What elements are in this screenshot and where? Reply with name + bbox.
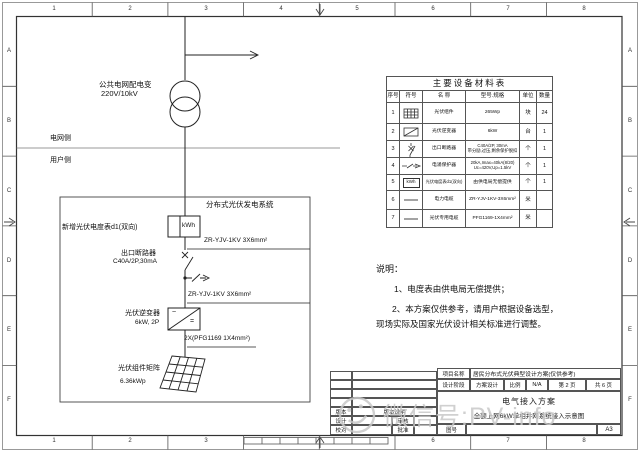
row-qty: 1 [537,141,553,158]
row-spec: 由供电局无偿提供 [466,175,520,191]
col-label: 7 [506,6,509,12]
revision-cell [352,398,437,407]
breaker-symbol [400,141,423,158]
pv-array-name: 光伏组件矩阵 [118,363,160,373]
row-name: 电力电缆 [423,191,466,210]
row-spec-line1: 20kA,Imax=40kA(8/20) [471,160,515,165]
approve-label: 批准 [392,425,414,435]
row-name: 光伏专用电缆 [423,210,466,228]
junction-dot [183,276,186,279]
paper-size: A3 [597,424,621,435]
inverter-symbol [400,124,423,141]
row-no: 4 [387,158,400,175]
review-label: 审核 [392,416,414,425]
row-unit: 个 [520,141,537,158]
drawing-title-cell: 电气接入方案 全额上网6kW单相并网系统接入示意图 [437,391,621,424]
cable-ac2-label: ZR-YJV-1KV 3X6mm² [188,291,251,298]
design-label: 设计 [330,416,352,425]
proof-value [352,425,392,435]
row-no: 2 [387,124,400,141]
row-qty: 1 [537,175,553,191]
table-row: 4 电涌保护器 20kA,Imax=40kA(8/20)Uc=420V,Up=1… [387,158,553,175]
col-label: 2 [128,438,131,444]
row-unit: 个 [520,158,537,175]
scale-label: 比例 [504,379,526,391]
revision-cell [352,380,437,389]
cable-symbol [400,210,423,228]
meter-label: 新增光伏电度表d1(双向) [62,222,137,232]
col-label: 4 [279,6,282,12]
scale-value: N/A [526,379,548,391]
revision-cell [330,380,352,389]
row-label: B [628,118,632,124]
col-label: 7 [506,438,509,444]
row-spec-line1: C40A/2P, 30mA [477,143,507,148]
cable-ac1-label: ZR-YJV-1KV 3X6mm² [204,237,267,244]
row-no: 5 [387,175,400,191]
grid-side-label: 电网侧 [50,133,71,143]
col-label: 1 [52,6,55,12]
col-label: 6 [431,6,434,12]
spd-icon [187,274,210,282]
revision-cell [330,398,352,407]
grid-arrow-icon [185,51,258,59]
col-label: 8 [582,438,585,444]
revision-cell [352,371,437,380]
proof-label: 校对 [330,425,352,435]
row-qty [537,210,553,228]
review-value [414,416,437,425]
row-label: A [628,48,632,54]
breaker-spec: C40A/2P,30mA [113,258,157,265]
drawing-no-label: 图号 [437,424,466,435]
approve-value [414,425,437,435]
note-1: 1、电度表由供电局无偿提供； [394,283,509,295]
inverter-dc-glyph: = [190,318,194,325]
row-spec: PFG1169-1X4mm² [466,210,520,228]
pv-panel-symbol [400,103,423,124]
row-qty: 1 [537,158,553,175]
page-current: 第 2 页 [548,379,586,391]
col-label: 2 [128,6,131,12]
note-2-cont: 现场实际及国家光伏设计相关标准进行调整。 [376,318,546,330]
drawing-title-line1: 电气接入方案 [502,396,556,407]
page-total: 共 6 页 [586,379,621,391]
version-label: 版本 [330,407,352,416]
row-spec-line2: Uc=420V,Up=1.5kV [474,165,512,170]
row-qty: 24 [537,103,553,124]
row-no: 1 [387,103,400,124]
table-row: 6 电力电缆 ZR-YJV-1KV-3X6mm² 米 [387,191,553,210]
inverter-spec: 6kW, 2P [135,319,159,326]
pv-system-title: 分布式光伏发电系统 [206,199,274,210]
stage-label: 设计阶段 [437,379,470,391]
note-2: 2、本方案仅供参考，请用户根据设备选型， [392,303,558,315]
drawing-sheet: 1 2 3 4 5 6 7 8 1 2 3 6 7 8 A B C D E F … [0,0,640,453]
revision-cell [330,371,352,380]
drawing-title-line2: 全额上网6kW单相并网系统接入示意图 [474,410,585,420]
spd-symbol [400,158,423,175]
row-unit: 台 [520,124,537,141]
design-value [352,416,392,425]
drawing-no-value [466,424,597,435]
row-qty: 1 [537,124,553,141]
col-label: 1 [52,438,55,444]
col-header-name: 名 称 [423,91,466,103]
stage-value: 方案设计 [470,379,504,391]
row-qty [537,191,553,210]
row-unit: 块 [520,103,537,124]
table-row: 1 光伏组件 265Wp 块 24 [387,103,553,124]
table-row: 3 出口断路器 C40A/2P, 30mA带分励,过压,剩余保护脱扣 个 1 [387,141,553,158]
project-label: 项目名称 [437,368,470,379]
user-side-label: 用户侧 [50,155,71,165]
row-unit: 米 [520,210,537,228]
revision-cell [330,389,352,398]
pv-array-spec: 6.36kWp [120,378,146,385]
row-label: B [7,118,11,124]
row-label: E [628,327,632,333]
pv-array-icon [160,356,205,392]
notes-title: 说明： [376,262,403,275]
col-label: 3 [204,438,207,444]
breaker-icon [182,252,193,270]
transformer-icon [170,81,200,127]
grid-transformer-spec: 220V/10kV [101,89,138,98]
row-label: C [628,188,632,194]
row-label: E [7,327,11,333]
row-unit: 米 [520,191,537,210]
inverter-name: 光伏逆变器 [125,308,160,318]
row-label: F [7,397,11,403]
table-row: 2 光伏逆变器 6kW 台 1 [387,124,553,141]
meter-display: kWh [182,222,195,229]
row-label: A [7,48,11,54]
row-name: 出口断路器 [423,141,466,158]
table-row: 5 kWh 光伏电度表d1(双向) 由供电局无偿提供 个 1 [387,175,553,191]
col-header-qty: 数量 [537,91,553,103]
row-spec: 6kW [466,124,520,141]
row-no: 3 [387,141,400,158]
table-row: 7 光伏专用电缆 PFG1169-1X4mm² 米 [387,210,553,228]
row-name: 电涌保护器 [423,158,466,175]
col-label: 6 [431,438,434,444]
row-no: 6 [387,191,400,210]
row-label: D [7,258,11,264]
row-name: 光伏逆变器 [423,124,466,141]
col-label: 5 [355,6,358,12]
row-spec-line2: 带分励,过压,剩余保护脱扣 [468,148,518,153]
row-spec: ZR-YJV-1KV-3X6mm² [466,191,520,210]
row-label: D [628,258,632,264]
row-unit: 个 [520,175,537,191]
kwh-meter-symbol: kWh [400,175,423,191]
row-name: 光伏组件 [423,103,466,124]
breaker-name: 出口断路器 [121,248,156,258]
col-label: 8 [582,6,585,12]
revision-cell [352,389,437,398]
row-name: 光伏电度表d1(双向) [423,175,466,191]
equipment-table-title: 主要设备材料表 [387,77,553,91]
row-label: C [7,188,11,194]
cable-symbol [400,191,423,210]
cable-dc-label: 2X(PFG1169 1X4mm²) [184,335,250,342]
col-header-no: 序号 [387,91,400,103]
col-header-unit: 单位 [520,91,537,103]
row-label: F [628,397,632,403]
version-note-label: 版本说明 [352,407,437,416]
row-no: 7 [387,210,400,228]
scale-bar [244,438,388,445]
inverter-ac-glyph: ~ [172,309,176,316]
equipment-table: 主要设备材料表 序号 符号 名 称 型号.规格 单位 数量 1 光伏组件 265… [386,76,553,228]
col-header-symbol: 符号 [400,91,423,103]
col-header-spec: 型号.规格 [466,91,520,103]
col-label: 3 [204,6,207,12]
project-name: 居民分布式光伏典型设计方案(仅供参考) [470,368,621,379]
row-spec: 265Wp [466,103,520,124]
